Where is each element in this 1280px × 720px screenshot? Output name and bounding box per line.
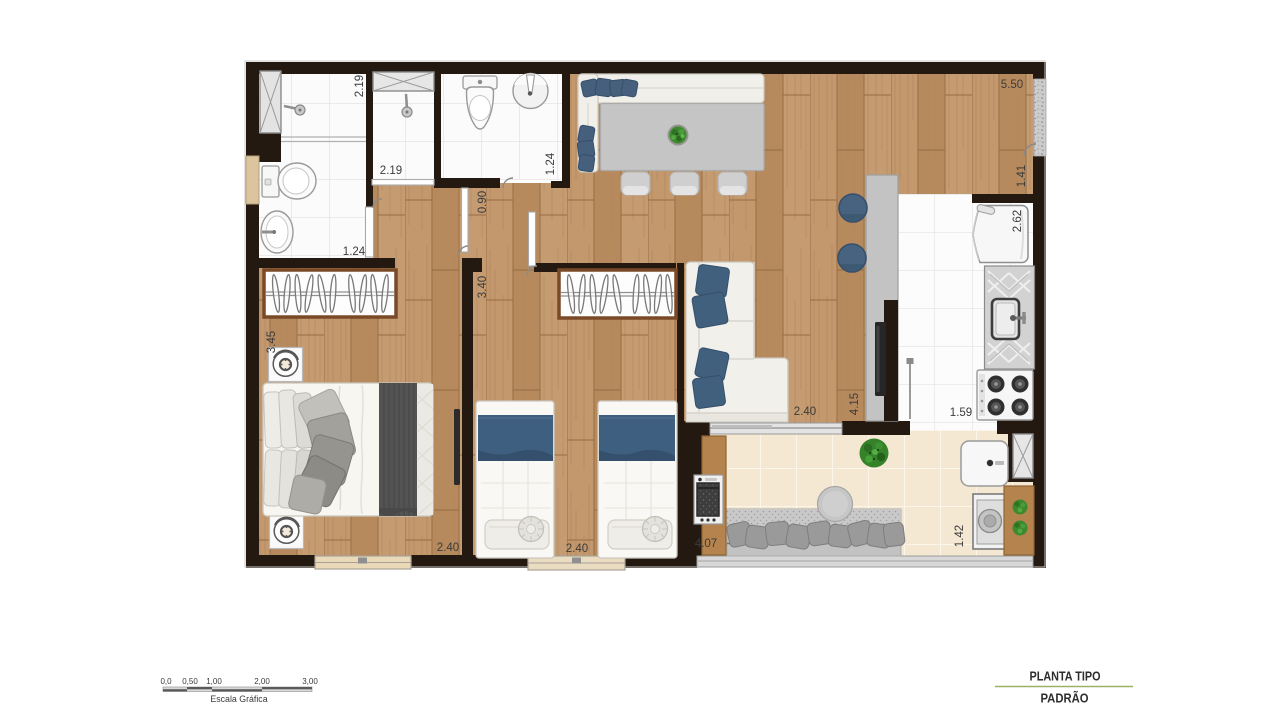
svg-text:1.42: 1.42 (954, 525, 966, 547)
svg-text:1.59: 1.59 (950, 407, 972, 419)
svg-text:2.40: 2.40 (794, 406, 816, 418)
svg-text:PADRÃO: PADRÃO (1041, 691, 1089, 706)
svg-text:3.45: 3.45 (266, 331, 278, 353)
svg-text:2.19: 2.19 (354, 75, 366, 97)
svg-text:0,0: 0,0 (160, 677, 172, 686)
svg-text:3.40: 3.40 (477, 276, 489, 298)
svg-text:1.24: 1.24 (343, 246, 366, 258)
svg-text:4.07: 4.07 (695, 538, 717, 550)
svg-text:1.41: 1.41 (1016, 165, 1028, 187)
svg-text:2.62: 2.62 (1012, 210, 1024, 232)
svg-text:2.19: 2.19 (380, 165, 402, 177)
svg-text:3,00: 3,00 (302, 677, 318, 686)
svg-text:1.24: 1.24 (545, 152, 557, 175)
svg-text:Escala Gráfica: Escala Gráfica (210, 694, 267, 704)
svg-text:1,00: 1,00 (206, 677, 222, 686)
svg-text:4.15: 4.15 (849, 393, 861, 415)
svg-text:0,50: 0,50 (182, 677, 198, 686)
svg-text:5.50: 5.50 (1001, 79, 1023, 91)
svg-text:PLANTA TIPO: PLANTA TIPO (1030, 670, 1101, 684)
svg-text:2.40: 2.40 (566, 543, 588, 555)
svg-text:0.90: 0.90 (477, 191, 489, 213)
svg-text:2.40: 2.40 (437, 542, 459, 554)
svg-text:2,00: 2,00 (254, 677, 270, 686)
